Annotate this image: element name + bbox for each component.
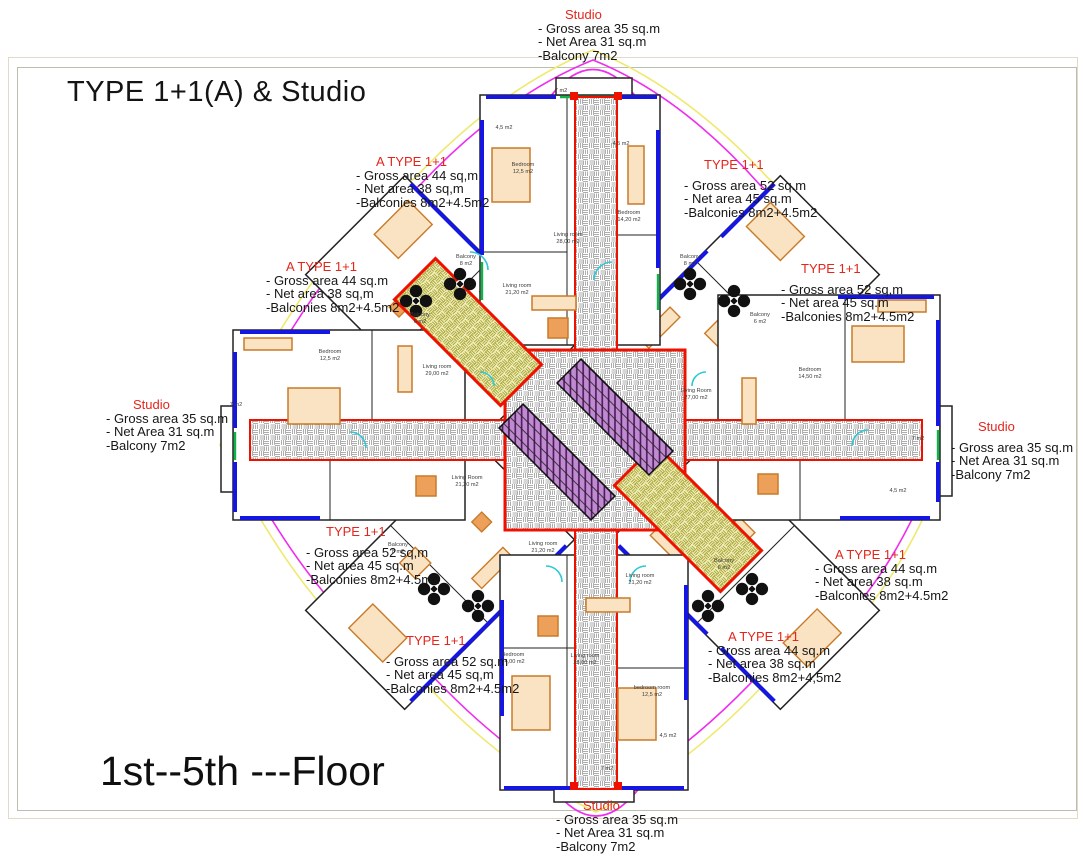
unit-gross-area: - Gross area 52 sq.m (386, 655, 519, 669)
room-label: Bedroom (319, 349, 342, 355)
unit-type-heading: Studio (978, 420, 1073, 434)
unit-type-heading: A TYPE 1+1 (835, 548, 948, 562)
unit-label-a-type-top-left: A TYPE 1+1 - Gross area 44 sq,m - Net ar… (356, 155, 489, 209)
unit-type-heading: A TYPE 1+1 (286, 260, 399, 274)
room-label: Living Room (680, 388, 711, 394)
unit-gross-area: - Gross area 44 sq,m (356, 169, 489, 183)
room-area: 12,5 m2 (320, 356, 340, 362)
unit-balcony: -Balcony 7m2 (951, 468, 1073, 482)
unit-type-heading: Studio (133, 398, 228, 412)
unit-net-area: - Net Area 31 sq.m (951, 454, 1073, 468)
unit-label-a-type-left: A TYPE 1+1 - Gross area 44 sq.m - Net ar… (266, 260, 399, 314)
room-area: 21,20 m2 (531, 548, 554, 554)
unit-net-area: - Net area 45 sq.m (306, 559, 439, 573)
unit-label-type-mid-left: TYPE 1+1 - Gross area 52 sq,m - Net area… (306, 525, 439, 586)
room-area: 27,00 m2 (684, 395, 707, 401)
unit-net-area: - Net area 45 sq,m (386, 668, 519, 682)
unit-label-studio-left: Studio - Gross area 35 sq.m - Net Area 3… (106, 398, 228, 452)
room-label: Living room (626, 573, 655, 579)
dimension-label: 4,5 m2 (659, 733, 676, 739)
dimension-label: 4,5 m2 (889, 488, 906, 494)
balcony-area: 8 m2 (684, 261, 696, 267)
dimension-label: 7 m2 (230, 402, 242, 408)
balcony-area: 8 m2 (460, 261, 472, 267)
unit-gross-area: - Gross area 52 sq,m (306, 546, 439, 560)
room-area: 14,20 m2 (617, 217, 640, 223)
room-label: Living room (571, 653, 600, 659)
dimension-label: 7 m2 (601, 766, 613, 772)
unit-label-type-right: TYPE 1+1 - Gross area 52 sq,m - Net area… (781, 262, 914, 323)
unit-balcony: -Balconies 8m2+4.5m2 (684, 206, 817, 220)
room-label: Living room (503, 283, 532, 289)
unit-balcony: -Balcony 7m2 (106, 439, 228, 453)
balcony-label: Balcony (750, 312, 770, 318)
room-area: 29,00 m2 (425, 371, 448, 377)
circulation-core (250, 92, 922, 790)
room-label: Bedroom (799, 367, 822, 373)
unit-net-area: - Net area 45 sq.m (781, 296, 914, 310)
unit-gross-area: - Gross area 44 sq.m (815, 562, 948, 576)
unit-net-area: - Net area 38 sq,m (356, 182, 489, 196)
unit-label-studio-bottom: Studio - Gross area 35 sq.m - Net Area 3… (556, 799, 678, 853)
unit-type-heading: Studio (565, 8, 660, 22)
unit-net-area: - Net area 38 sq,m (266, 287, 399, 301)
unit-balcony: -Balcony 7m2 (556, 840, 678, 854)
unit-net-area: - Net Area 31 sq.m (538, 35, 660, 49)
unit-net-area: - Net Area 31 sq.m (556, 826, 678, 840)
drawing-canvas: Bedroom 12,5 m2 Bedroom 14,20 m2 Living … (0, 0, 1083, 863)
unit-type-heading: TYPE 1+1 (326, 525, 439, 539)
dimension-label: 4,5 m2 (495, 125, 512, 131)
unit-gross-area: - Gross area 52 sq.m (684, 179, 817, 193)
unit-gross-area: - Gross area 35 sq.m (538, 22, 660, 36)
room-label: Living room (529, 541, 558, 547)
unit-gross-area: - Gross area 44 sq.m (266, 274, 399, 288)
dimension-label: 7 m2 (912, 436, 924, 442)
room-area: 21,20 m2 (628, 580, 651, 586)
room-area: 14,50 m2 (798, 374, 821, 380)
balcony-area: 6 m2 (718, 565, 730, 571)
room-area: 12,5 m2 (513, 169, 533, 175)
unit-gross-area: - Gross area 35 sq.m (556, 813, 678, 827)
room-label: Bedroom (618, 210, 641, 216)
unit-label-type-top-right: TYPE 1+1 - Gross area 52 sq.m - Net area… (684, 158, 817, 219)
unit-label-studio-top: Studio - Gross area 35 sq.m - Net Area 3… (538, 8, 660, 62)
unit-net-area: - Net Area 31 sq.m (106, 425, 228, 439)
balcony-label: Balcony (680, 254, 700, 260)
unit-type-heading: TYPE 1+1 (406, 634, 519, 648)
unit-gross-area: - Gross area 35 sq.m (951, 441, 1073, 455)
room-area: 21,20 m2 (505, 290, 528, 296)
balcony-area: 6 m2 (414, 319, 426, 325)
unit-balcony: -Balcony 7m2 (538, 49, 660, 63)
balcony-label: Balcony (456, 254, 476, 260)
unit-net-area: - Net area 38 sq.m (815, 575, 948, 589)
unit-label-a-type-right: A TYPE 1+1 - Gross area 44 sq.m - Net ar… (815, 548, 948, 602)
unit-type-heading: A TYPE 1+1 (728, 630, 841, 644)
unit-label-a-type-bottom-right: A TYPE 1+1 - Gross area 44 sq.m - Net ar… (708, 630, 841, 684)
room-area: 12,5 m2 (642, 692, 662, 698)
unit-balcony: -Balconies 8m2+4.5m2 (306, 573, 439, 587)
unit-net-area: - Net area 38 sq.m (708, 657, 841, 671)
room-area: 28,00 m2 (556, 239, 579, 245)
room-label: Living Room (451, 475, 482, 481)
unit-label-type-bottom-left: TYPE 1+1 - Gross area 52 sq.m - Net area… (386, 634, 519, 695)
unit-balcony: -Balconies 8m2+4.5m2 (266, 301, 399, 315)
unit-net-area: - Net area 45 sq.m (684, 192, 817, 206)
unit-type-heading: TYPE 1+1 (704, 158, 817, 172)
room-label: Bedroom (512, 162, 535, 168)
unit-label-studio-right: Studio - Gross area 35 sq.m - Net Area 3… (951, 420, 1073, 481)
room-label: bedroom room (634, 685, 671, 691)
room-area: 21,20 m2 (455, 482, 478, 488)
unit-balcony: -Balconies 8m2+4.5m2 (781, 310, 914, 324)
unit-type-heading: A TYPE 1+1 (376, 155, 489, 169)
dimension-label: 4,5 m2 (612, 141, 629, 147)
unit-type-heading: TYPE 1+1 (801, 262, 914, 276)
room-area: 28,00 m2 (573, 660, 596, 666)
unit-gross-area: - Gross area 35 sq.m (106, 412, 228, 426)
room-label: Living room (554, 232, 583, 238)
unit-balcony: -Balconies 8m2+4.5m2 (815, 589, 948, 603)
unit-gross-area: - Gross area 52 sq,m (781, 283, 914, 297)
dimension-label: 7 m2 (555, 88, 567, 94)
balcony-label: Balcony (714, 558, 734, 564)
unit-gross-area: - Gross area 44 sq.m (708, 644, 841, 658)
room-label: Living room (423, 364, 452, 370)
balcony-label: Balcony (410, 312, 430, 318)
balcony-area: 6 m2 (754, 319, 766, 325)
page-title: TYPE 1+1(A) & Studio (67, 76, 366, 109)
unit-balcony: -Balconies 8m2+4.5m2 (356, 196, 489, 210)
floor-range-label: 1st--5th ---Floor (100, 748, 385, 795)
unit-type-heading: Studio (583, 799, 678, 813)
unit-balcony: -Balconies 8m2+4.5m2 (386, 682, 519, 696)
unit-balcony: -Balconies 8m2+4,5m2 (708, 671, 841, 685)
